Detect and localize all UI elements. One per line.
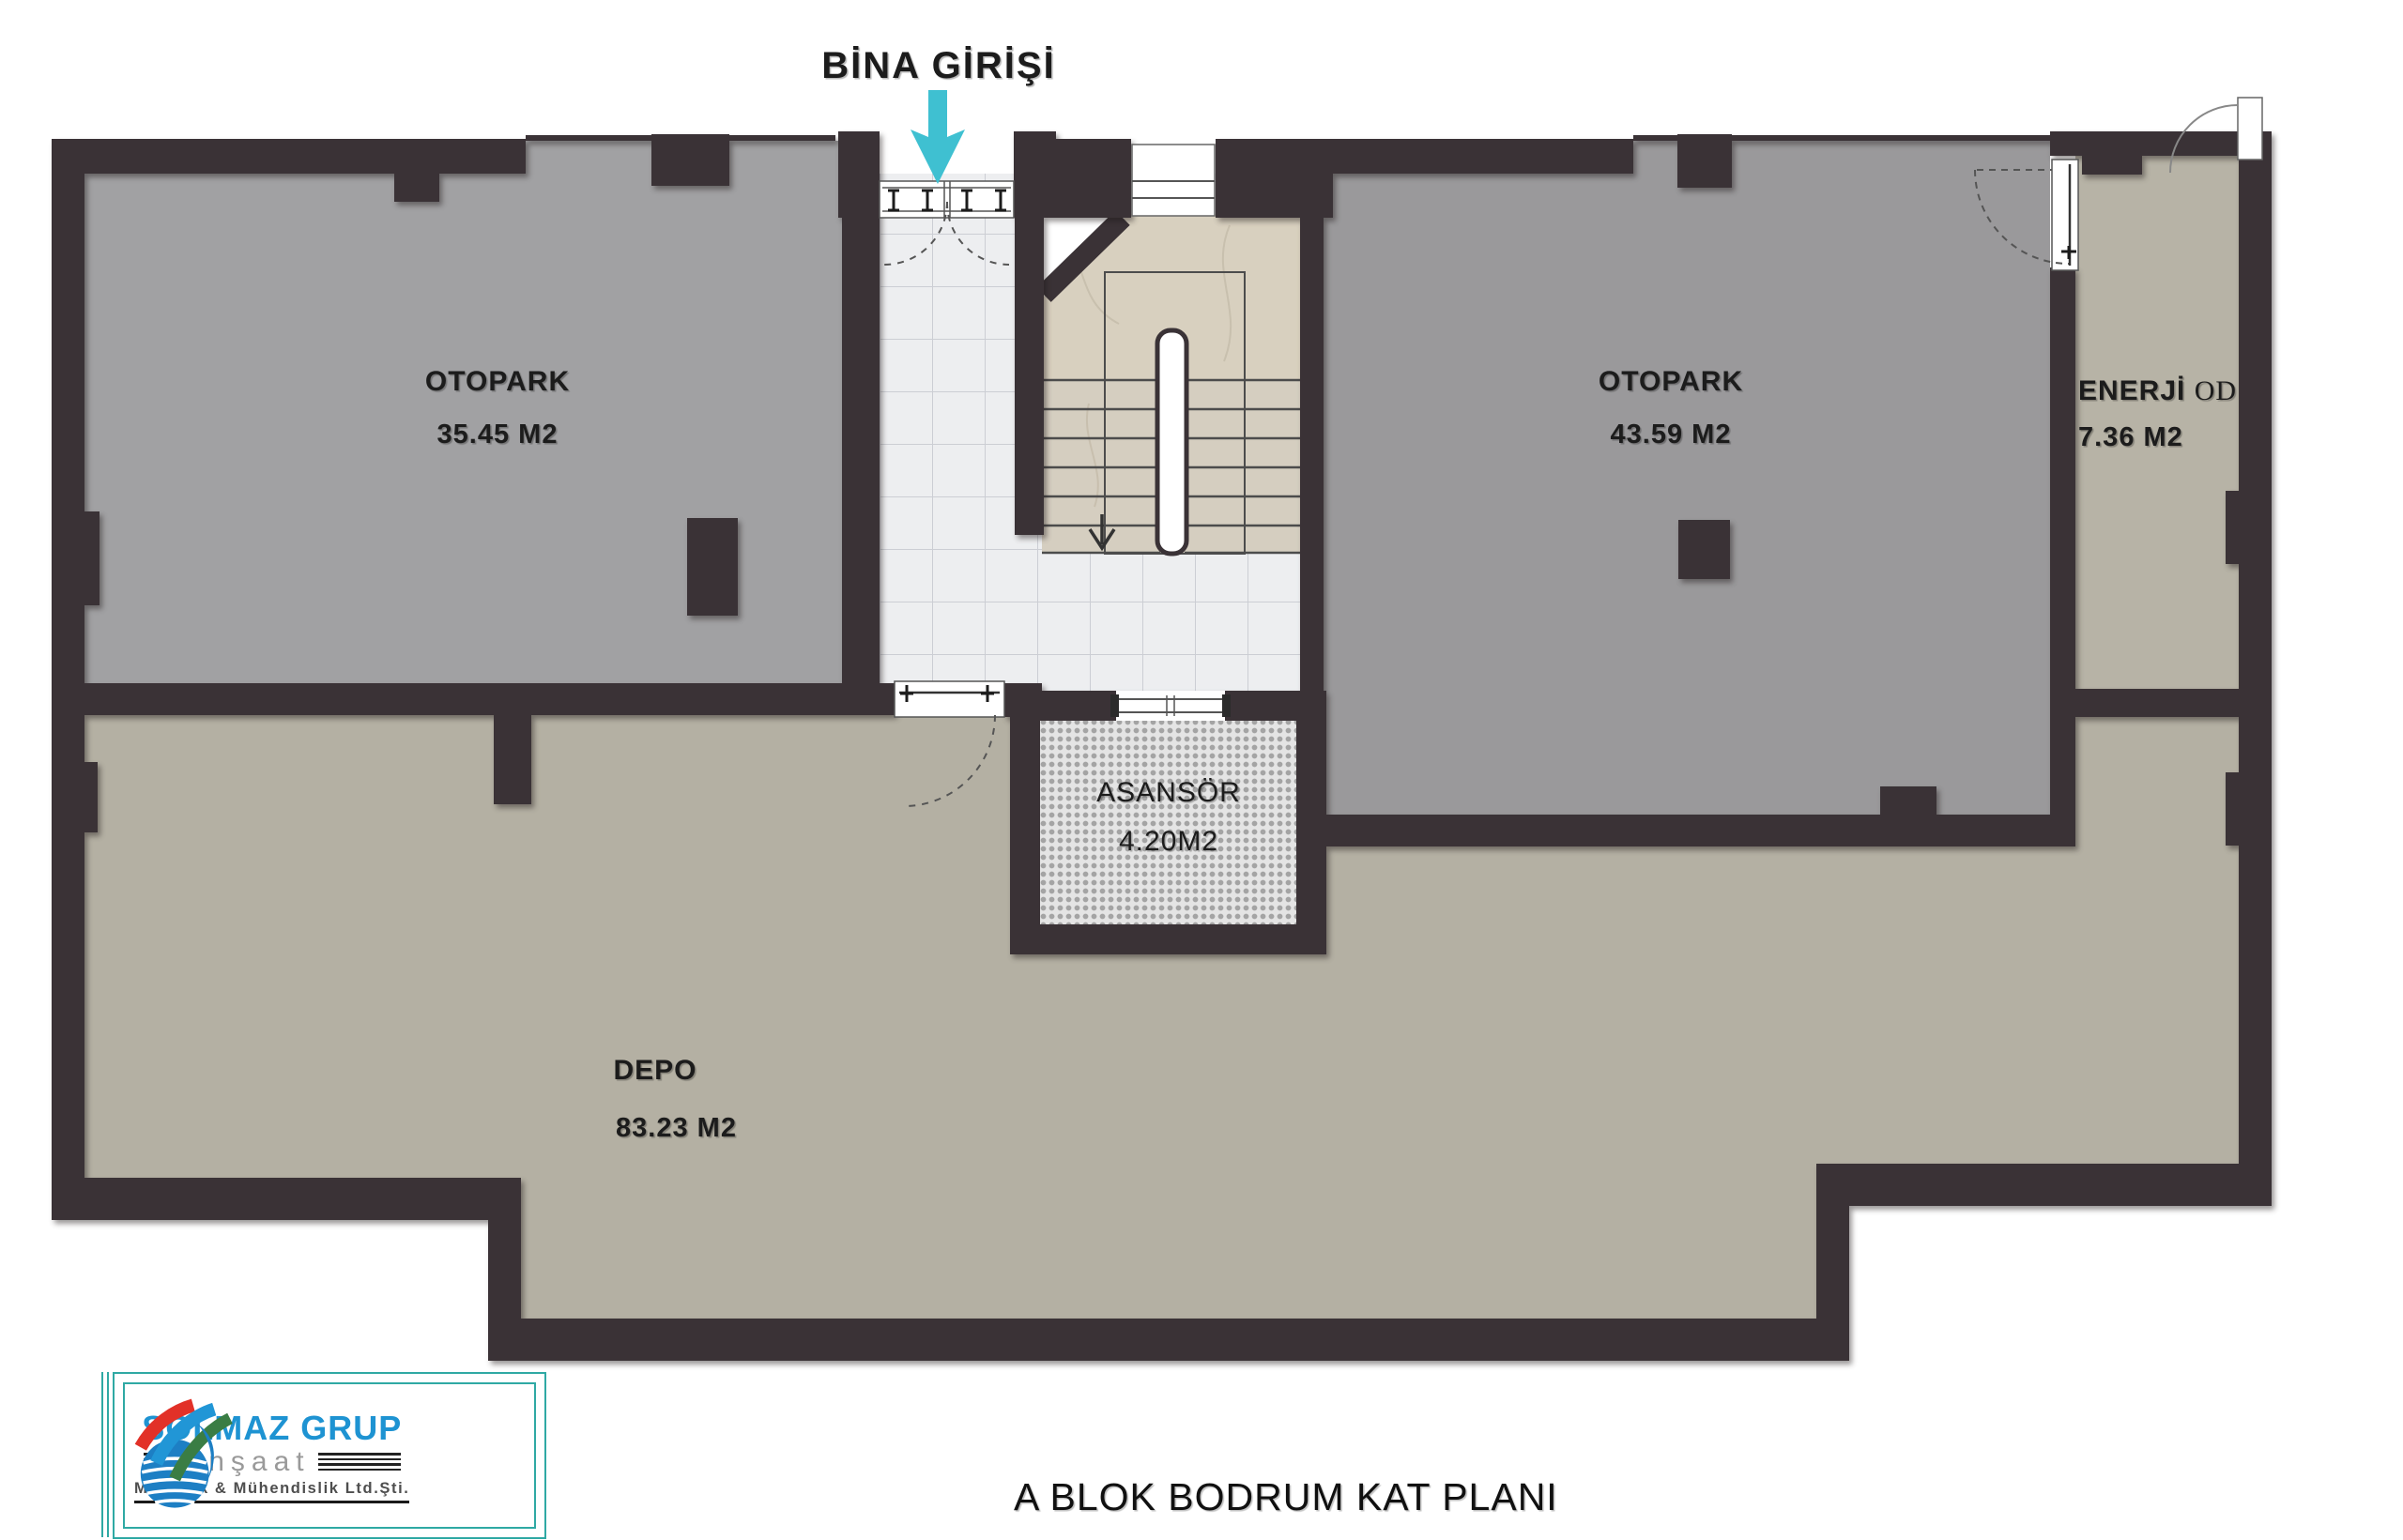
- entrance-arrow-icon: [911, 90, 965, 184]
- entrance-label: BİNA GİRİŞİ: [807, 45, 1070, 87]
- elevator-door: [1110, 691, 1231, 721]
- otopark-right-name: OTOPARK: [1586, 366, 1755, 398]
- depo-name: DEPO: [571, 1055, 740, 1087]
- logo-decor-lines: [318, 1453, 401, 1471]
- column-otopark-right: [1678, 520, 1730, 579]
- logo-frame-line: [107, 1372, 109, 1537]
- otopark-left-name: OTOPARK: [404, 366, 591, 398]
- room-asansor: [1040, 721, 1296, 924]
- stair-window: [1132, 145, 1215, 216]
- asansor-area: 4.20M2: [1075, 826, 1263, 858]
- otopark-right-area: 43.59 M2: [1586, 419, 1755, 450]
- logo-frame-line: [101, 1372, 103, 1537]
- logo-frame: SOLMAZ GRUP İnşaat Mimarlık & Mühendisli…: [113, 1372, 546, 1539]
- staircase: [1042, 214, 1300, 554]
- column-otopark-left: [687, 518, 738, 616]
- depo-area: 83.23 M2: [585, 1113, 768, 1144]
- asansor-name: ASANSÖR: [1075, 777, 1263, 809]
- floor-plan-page: BİNA GİRİŞİ OTOPARK 35.45 M2 OTOPARK 43.…: [0, 0, 2403, 1540]
- otopark-left-area: 35.45 M2: [404, 419, 591, 450]
- enerji-name: ENERJİ OD: [2078, 375, 2242, 407]
- enerji-area: 7.36 M2: [2078, 422, 2242, 453]
- room-otopark-right: [1324, 141, 2050, 815]
- floor-plan-canvas: [0, 0, 2403, 1540]
- solmaz-grup-logo-icon: [125, 1384, 256, 1516]
- stair-rail: [1157, 330, 1186, 554]
- page-title: A BLOK BODRUM KAT PLANI: [1014, 1475, 1502, 1519]
